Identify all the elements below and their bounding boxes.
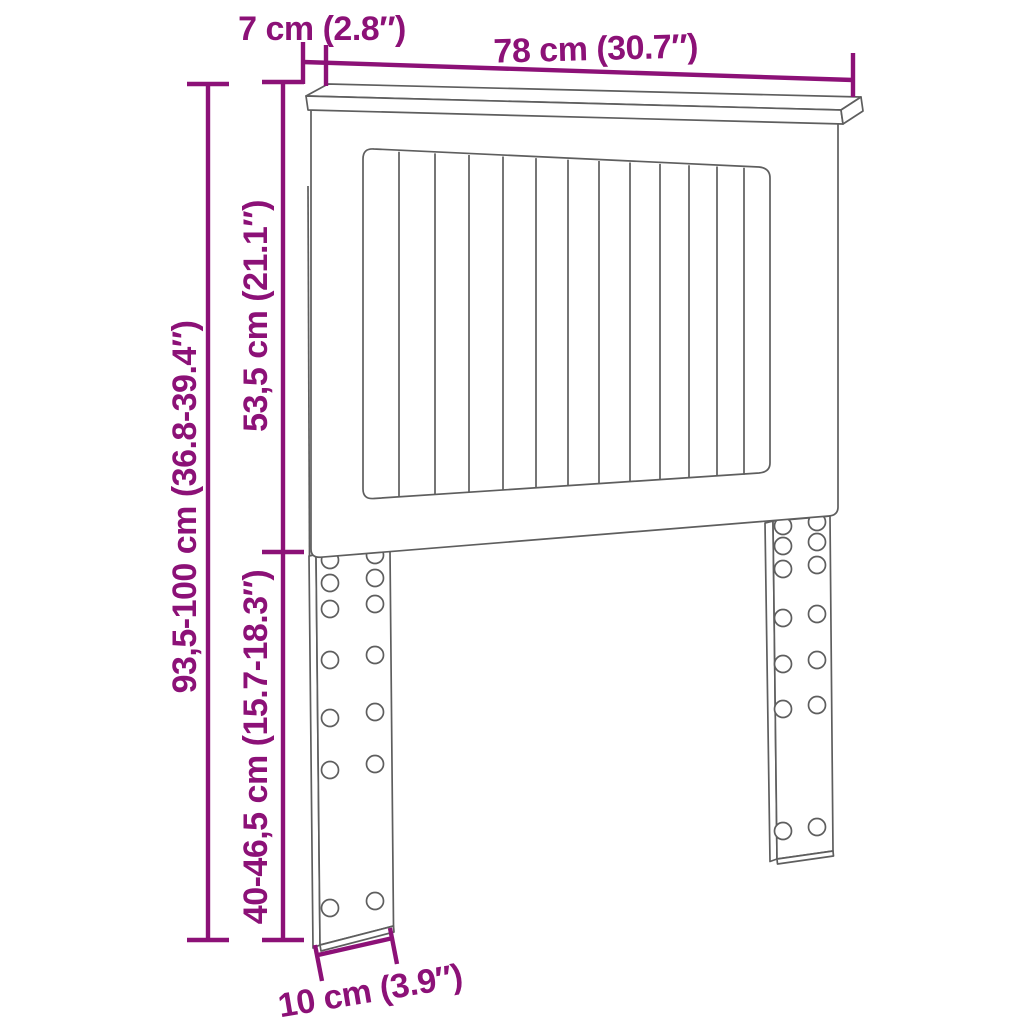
dimension-label-top-depth: 7 cm (2.8″) — [238, 10, 406, 48]
leg-hole — [367, 570, 384, 587]
dimension-label-top-width: 78 cm (30.7″) — [493, 27, 698, 70]
dimension-label-total-height: 93,5-100 cm (36.8-39.4″) — [166, 321, 204, 694]
leg-hole — [809, 652, 826, 669]
leg-hole — [367, 704, 384, 721]
leg-hole — [809, 606, 826, 623]
leg-hole — [809, 819, 826, 836]
leg-hole — [775, 656, 792, 673]
leg-hole — [809, 697, 826, 714]
dimension-leg-width: 10 cm (3.9″) — [275, 928, 465, 1024]
leg-hole — [322, 601, 339, 618]
headboard-panel — [308, 100, 838, 557]
right-leg — [765, 514, 834, 865]
leg-hole — [367, 647, 384, 664]
leg-hole — [775, 823, 792, 840]
dimension-total-height: 93,5-100 cm (36.8-39.4″) — [166, 84, 229, 940]
dimension-tick — [390, 928, 397, 964]
leg-hole — [775, 561, 792, 578]
leg-hole — [322, 710, 339, 727]
left-leg — [309, 547, 394, 952]
leg-hole — [322, 652, 339, 669]
dimension-label-leg-width: 10 cm (3.9″) — [275, 957, 465, 1024]
dimension-label-leg-section: 40-46,5 cm (15.7-18.3″) — [237, 570, 275, 924]
dimension-label-upper-section: 53,5 cm (21.1″) — [237, 200, 275, 432]
leg-hole — [775, 701, 792, 718]
panel-left-side-edge — [308, 186, 310, 556]
headboard-dimension-diagram: 93,5-100 cm (36.8-39.4″) 53,5 cm (21.1″)… — [0, 0, 1024, 1024]
leg-hole — [322, 762, 339, 779]
leg-hole — [775, 610, 792, 627]
leg-hole — [775, 538, 792, 555]
leg-hole — [367, 756, 384, 773]
leg-hole — [367, 596, 384, 613]
leg-hole — [322, 575, 339, 592]
leg-hole — [809, 557, 826, 574]
leg-hole — [367, 893, 384, 910]
dimension-split-height: 53,5 cm (21.1″) 40-46,5 cm (15.7-18.3″) — [237, 82, 304, 940]
leg-hole — [322, 900, 339, 917]
diagram-canvas: 93,5-100 cm (36.8-39.4″) 53,5 cm (21.1″)… — [0, 0, 1024, 1024]
headboard-drawing — [306, 84, 863, 951]
panel-outline — [311, 100, 838, 557]
leg-hole — [809, 534, 826, 551]
